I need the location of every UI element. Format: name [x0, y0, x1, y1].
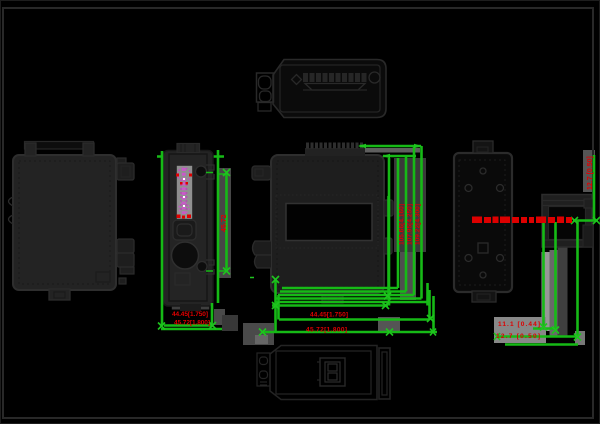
svg-text:105.66[4.160]: 105.66[4.160] — [399, 204, 406, 245]
svg-text:12.7 [0.50]: 12.7 [0.50] — [496, 333, 540, 340]
svg-text:45.72[1.800]: 45.72[1.800] — [306, 327, 347, 334]
svg-text:107.95[4.250]: 107.95[4.250] — [407, 204, 414, 245]
svg-text:12.7 [0.50]: 12.7 [0.50] — [587, 156, 594, 190]
svg-text:11.1 [0.44]: 11.1 [0.44] — [498, 321, 540, 328]
svg-text:109.22[4.300]: 109.22[4.300] — [415, 204, 422, 245]
svg-text:45.72: 45.72 — [221, 214, 228, 232]
svg-text:44.45[1.750]: 44.45[1.750] — [310, 312, 348, 319]
svg-text:44.45[1.750]: 44.45[1.750] — [172, 311, 208, 318]
svg-text:45.72[1.800]: 45.72[1.800] — [174, 320, 210, 327]
